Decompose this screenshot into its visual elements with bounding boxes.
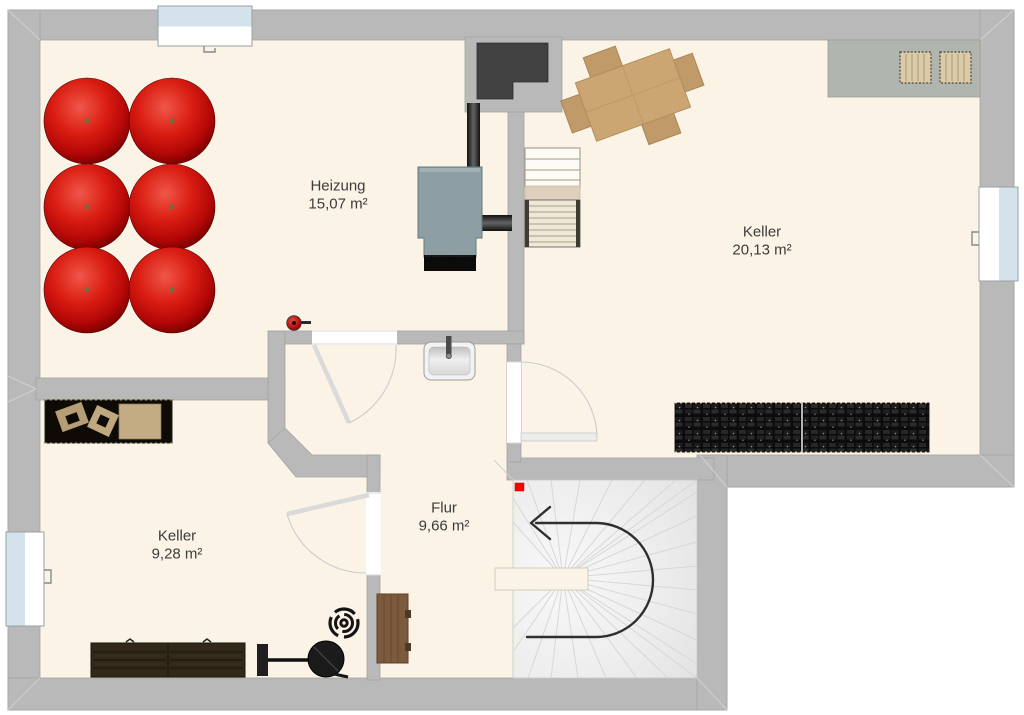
oil-tank[interactable] — [44, 164, 130, 250]
wall-keller-small-right — [268, 331, 285, 443]
basket[interactable] — [940, 52, 971, 83]
window-left[interactable] — [6, 532, 51, 626]
sink[interactable] — [424, 336, 475, 380]
workbench[interactable] — [45, 400, 172, 443]
wall-keller-small-top — [36, 378, 285, 400]
wall-keller-large-bottom — [700, 455, 1014, 487]
storage-shelves[interactable] — [675, 403, 929, 452]
window-right[interactable] — [972, 187, 1018, 281]
faucet — [446, 336, 452, 354]
boiler-base — [424, 255, 476, 271]
oil-tank[interactable] — [129, 78, 215, 164]
floorplan-drawing — [0, 0, 1024, 715]
upper-stairs[interactable] — [525, 148, 580, 247]
platform-recess — [828, 40, 980, 97]
wall-stairwell-right — [697, 455, 727, 710]
chimney-pipe-horizontal — [479, 215, 512, 231]
basket[interactable] — [900, 52, 931, 83]
door-leaf — [521, 433, 597, 441]
wall-bottom — [8, 678, 727, 710]
stair-landing — [495, 568, 588, 590]
chimney-pipe-vertical — [467, 103, 480, 169]
oil-tank[interactable] — [129, 247, 215, 333]
floorplan-canvas: Heizung 15,07 m² Keller 20,13 m² Keller … — [0, 0, 1024, 715]
oil-tank[interactable] — [129, 164, 215, 250]
stair-marker — [515, 483, 524, 491]
window-top[interactable] — [158, 6, 252, 52]
wall-stairwell-top — [507, 458, 714, 480]
wood-shelf[interactable] — [377, 594, 411, 663]
dresser[interactable] — [168, 639, 245, 677]
winder-stairs[interactable] — [495, 480, 697, 678]
oil-tank[interactable] — [44, 78, 130, 164]
oil-tanks[interactable] — [44, 78, 215, 333]
dresser[interactable] — [91, 639, 168, 677]
oil-tank[interactable] — [44, 247, 130, 333]
